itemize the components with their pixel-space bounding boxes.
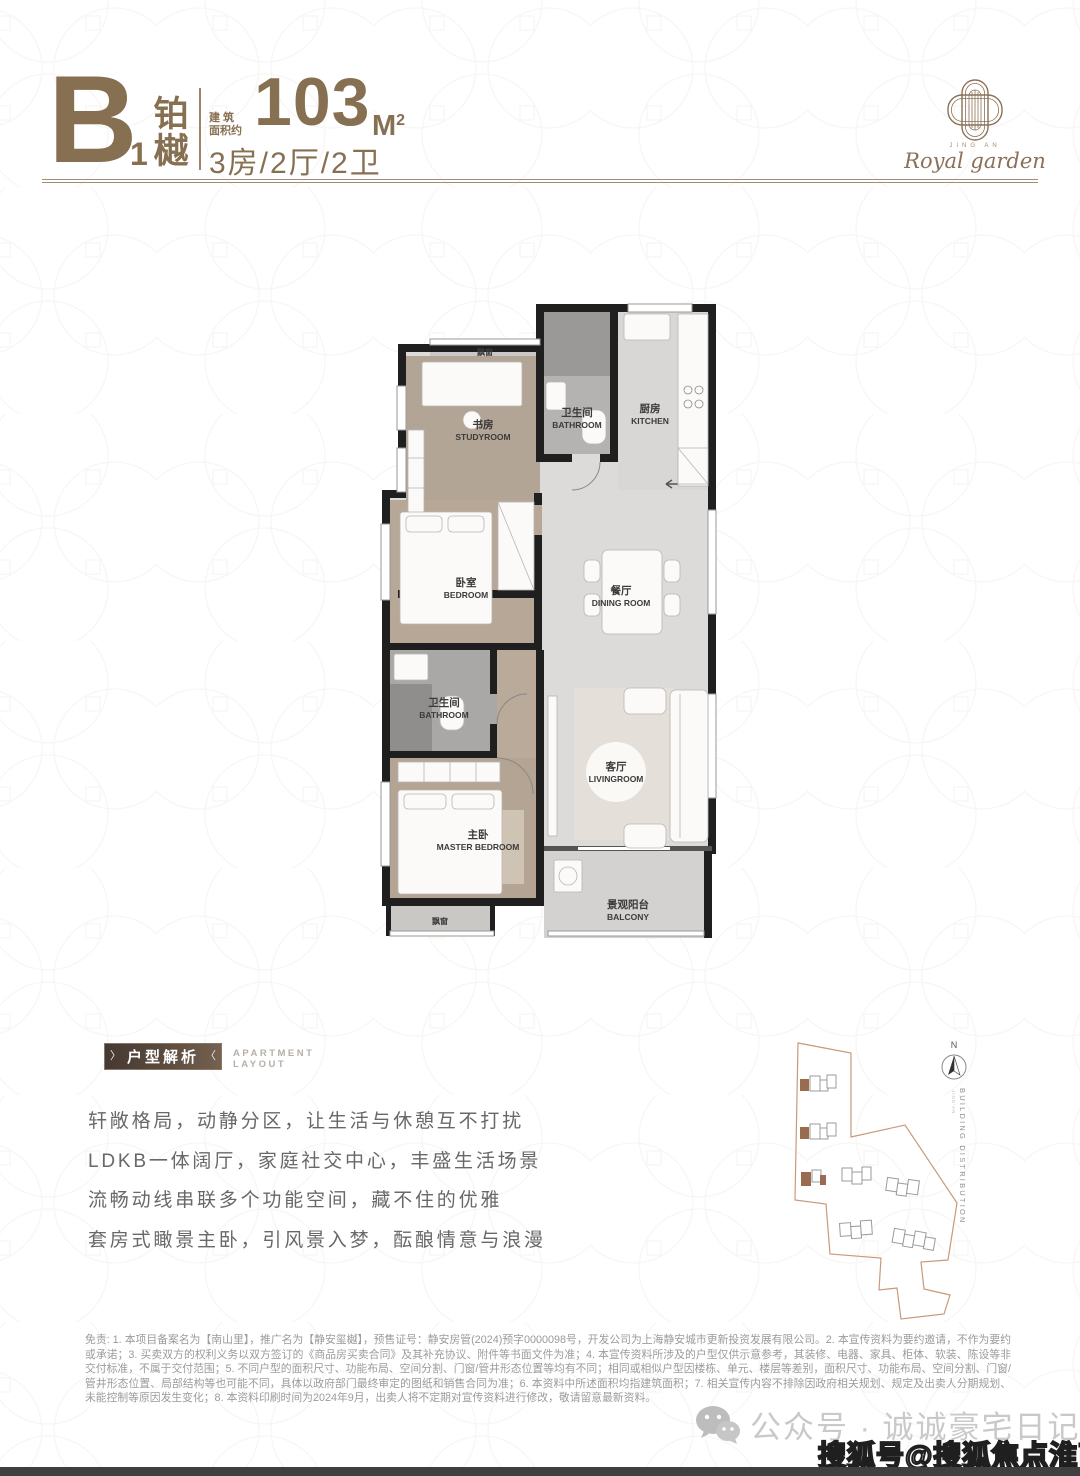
room-study-en: STUDYROOM	[455, 432, 510, 442]
room-dining-en: DINING ROOM	[592, 598, 651, 608]
room-living-en: LIVINGROOM	[589, 774, 644, 784]
room-master-en: MASTER BEDROOM	[437, 842, 520, 852]
building-low-left	[839, 1220, 872, 1239]
building-row-2	[800, 1123, 836, 1139]
area-value: 103	[254, 68, 370, 136]
area-label: 建 筑 面积约	[209, 112, 255, 138]
room-bath1-en: BATHROOM	[552, 420, 601, 430]
description-line: 流畅动线串联多个功能空间，藏不住的优雅	[88, 1185, 546, 1225]
site-buildings	[800, 1075, 936, 1251]
header-divider	[199, 88, 201, 170]
header-rule	[42, 179, 1038, 183]
description-paragraphs: 轩敞格局，动静分区，让生活与休憩互不打扰 LDKB一体阔厅，家庭社交中心，丰盛生…	[88, 1106, 546, 1264]
bottom-bar	[0, 1467, 1080, 1476]
room-balcony-en: BALCONY	[607, 912, 649, 922]
area-unit-sup: 2	[396, 112, 405, 129]
room-bedroom-cn: 卧室	[456, 576, 477, 589]
section-title: 户型解析	[127, 1046, 199, 1067]
section-subtitle-line2: LAYOUT	[233, 1059, 314, 1070]
room-living-cn: 客厅	[605, 760, 627, 773]
map-caption-small: JING'AN	[951, 1090, 956, 1114]
brand-script-text: Royal garden	[895, 149, 1055, 173]
compass-needle-light	[954, 1056, 960, 1075]
floorplan: 飘窗 书房 STUDYROOM 卫生间 BATHROOM 厨房 KITCHEN …	[378, 298, 718, 958]
disclaimer-text: 免责: 1. 本项目备案名为【南山里】，推广名为【静安玺樾】，预售证号：静安房管…	[85, 1333, 1011, 1406]
section-title-box: 〉 户型解析 〈	[104, 1043, 222, 1070]
bay-window-top-label: 飘窗	[477, 347, 493, 357]
unit-letter: B	[48, 58, 138, 182]
bay-window-bottom-label: 飘窗	[432, 916, 448, 926]
area-label-line1: 建 筑	[209, 112, 255, 125]
description-line: 套房式瞰景主卧，引风景入梦，酝酿情意与浪漫	[88, 1225, 546, 1265]
room-bedroom-en: BEDROOM	[444, 590, 488, 600]
room-bath1-cn: 卫生间	[561, 406, 593, 419]
building-row-1	[800, 1075, 836, 1091]
chevron-right-icon: 〉	[110, 1051, 121, 1062]
description-line: 轩敞格局，动静分区，让生活与休憩互不打扰	[88, 1106, 546, 1146]
chevron-left-icon: 〈	[205, 1051, 216, 1062]
unit-name-char-1: 铂	[152, 96, 190, 133]
room-bath2-cn: 卫生间	[428, 696, 460, 709]
building-distribution-map: N JING'AN BUILDING DISTRIBUTION	[780, 1030, 1020, 1340]
room-study-cn: 书房	[473, 418, 494, 431]
quatrefoil-emblem-icon	[945, 78, 1005, 142]
unit-name-char-2: 樾	[152, 133, 190, 170]
building-mid	[842, 1167, 871, 1184]
compass-needle-dark	[948, 1056, 954, 1075]
room-master-cn: 主卧	[468, 828, 489, 841]
building-low-right	[892, 1227, 936, 1251]
section-subtitle-line1: APARTMENT	[233, 1048, 314, 1059]
layout-spec: 3房/2厅/2卫	[209, 138, 382, 182]
map-caption: BUILDING DISTRIBUTION	[958, 1088, 967, 1225]
poster-page: B 1 铂 樾 建 筑 面积约 103 M2 3房/2厅/2卫 JING	[0, 0, 1080, 1476]
wechat-icon	[694, 1404, 742, 1446]
description-line: LDKB一体阔厅，家庭社交中心，丰盛生活场景	[88, 1146, 546, 1186]
brand-logo: JING AN Royal garden	[895, 78, 1055, 173]
room-bath2-en: BATHROOM	[419, 710, 468, 720]
compass: N	[942, 1040, 966, 1079]
building-row-3	[801, 1170, 826, 1186]
unit-number: 1	[130, 136, 148, 173]
compass-n-label: N	[951, 1040, 958, 1050]
room-kitchen-cn: 厨房	[640, 402, 661, 415]
room-dining-cn: 餐厅	[610, 584, 632, 597]
section-subtitle: APARTMENT LAYOUT	[233, 1048, 314, 1070]
room-balcony-cn: 景观阳台	[606, 898, 649, 911]
building-right-mid	[885, 1176, 919, 1197]
room-kitchen-en: KITCHEN	[631, 416, 669, 426]
area-label-line2: 面积约	[209, 125, 255, 138]
unit-name: 铂 樾	[152, 96, 190, 170]
